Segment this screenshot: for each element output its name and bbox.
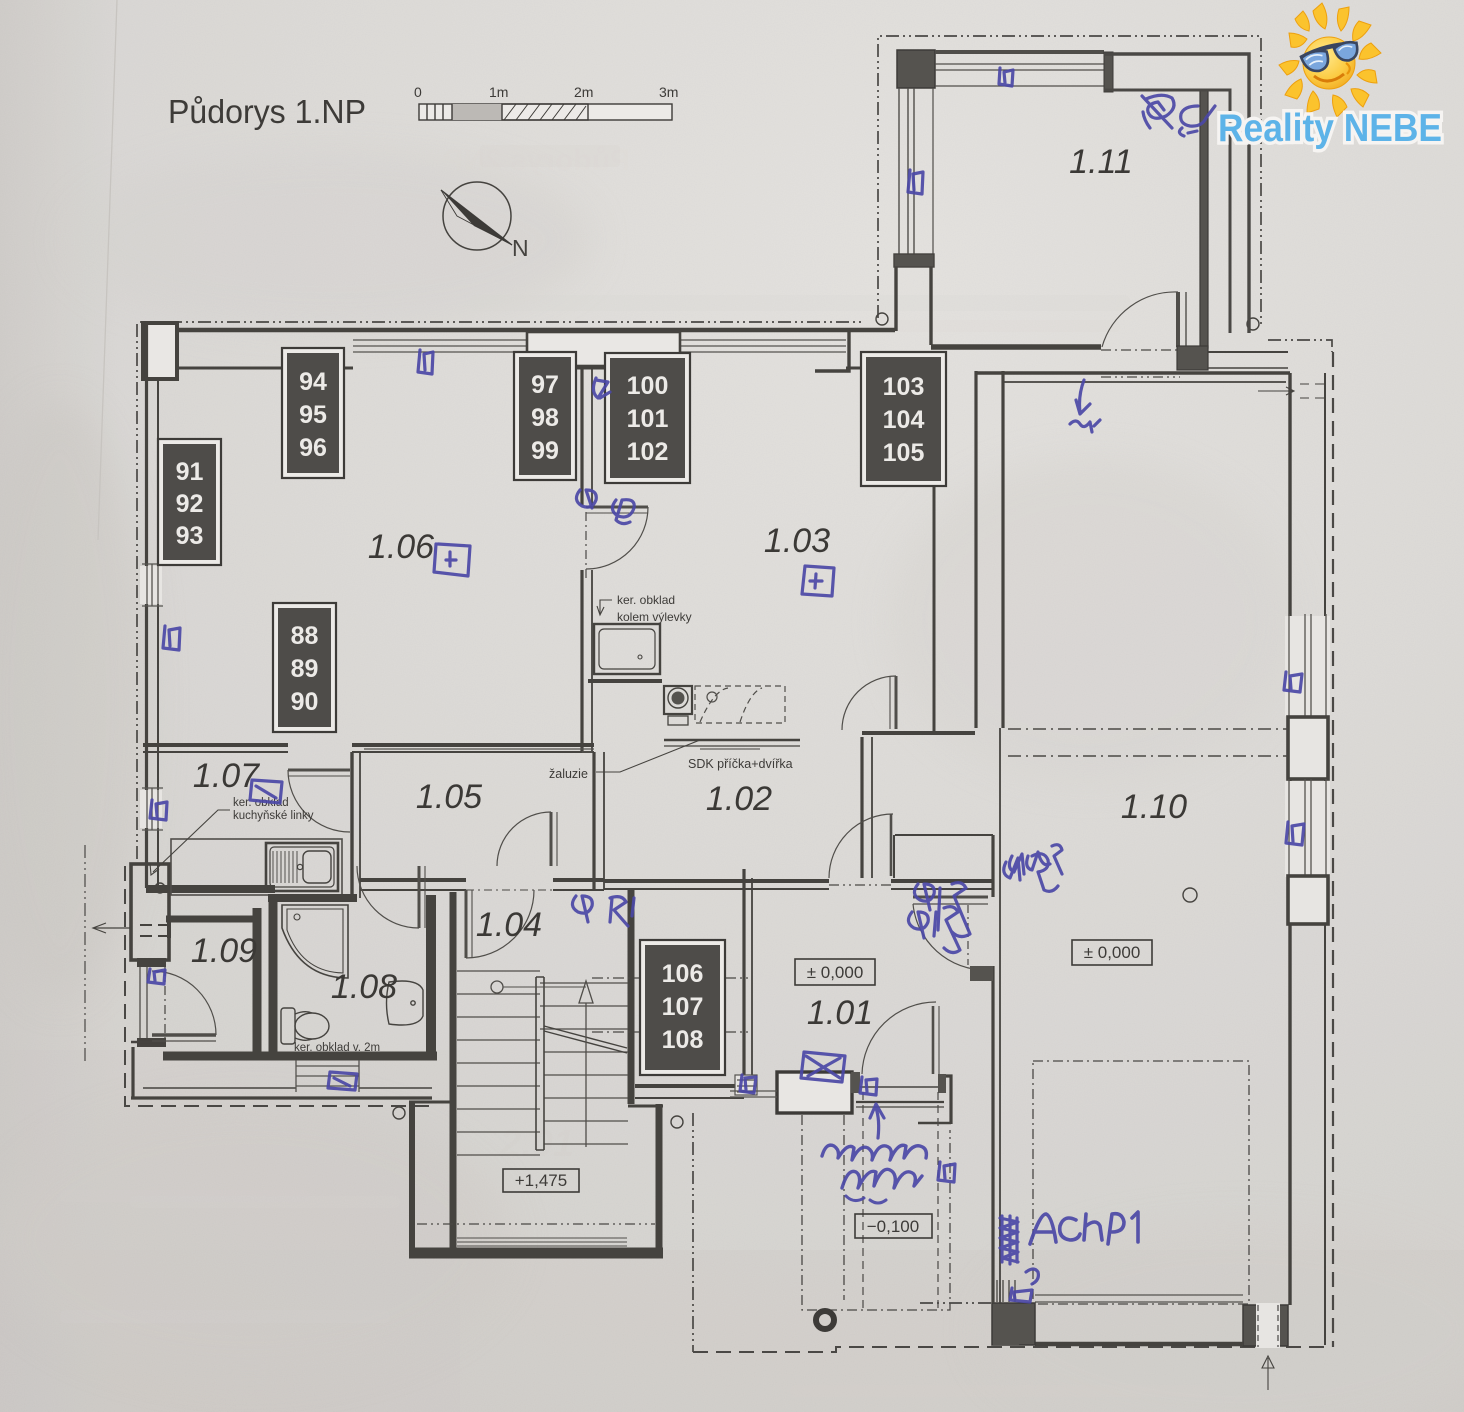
svg-text:1.08: 1.08 — [331, 968, 397, 1006]
svg-text:91: 91 — [176, 458, 204, 486]
svg-text:žaluzie: žaluzie — [549, 767, 588, 781]
svg-text:Půdorys 1.NP: Půdorys 1.NP — [168, 93, 366, 130]
svg-text:94: 94 — [299, 368, 327, 396]
svg-text:88: 88 — [291, 622, 319, 650]
svg-text:101: 101 — [627, 405, 669, 433]
svg-text:1.03: 1.03 — [764, 522, 830, 560]
svg-text:Reality NEBE: Reality NEBE — [1218, 107, 1442, 150]
svg-text:2m: 2m — [574, 84, 593, 100]
svg-text:± 0,000: ± 0,000 — [807, 963, 864, 982]
svg-text:kolem výlevky: kolem výlevky — [617, 610, 692, 624]
svg-text:93: 93 — [176, 522, 204, 550]
svg-text:1m: 1m — [489, 84, 508, 100]
svg-text:105: 105 — [883, 439, 925, 467]
svg-text:1.04: 1.04 — [476, 906, 542, 944]
svg-text:ker. obklad v. 2m: ker. obklad v. 2m — [294, 1042, 380, 1054]
svg-text:1.06: 1.06 — [368, 528, 434, 566]
svg-text:107: 107 — [662, 993, 704, 1021]
svg-text:99: 99 — [531, 437, 559, 465]
svg-text:98: 98 — [531, 404, 559, 432]
svg-text:1.02: 1.02 — [706, 780, 772, 818]
svg-text:± 0,000: ± 0,000 — [1084, 943, 1141, 962]
svg-text:N: N — [512, 235, 529, 261]
svg-text:+1,475: +1,475 — [515, 1171, 567, 1190]
svg-text:90: 90 — [291, 688, 319, 716]
svg-text:0: 0 — [414, 84, 422, 100]
svg-text:ker. obklad: ker. obklad — [617, 593, 675, 607]
svg-text:89: 89 — [291, 655, 319, 683]
svg-text:100: 100 — [627, 372, 669, 400]
svg-text:3m: 3m — [659, 84, 678, 100]
svg-text:1.11: 1.11 — [1069, 143, 1133, 181]
svg-text:103: 103 — [883, 373, 925, 401]
svg-text:92: 92 — [176, 490, 204, 518]
svg-text:SDK příčka+dvířka: SDK příčka+dvířka — [688, 757, 793, 771]
svg-text:108: 108 — [662, 1026, 704, 1054]
svg-text:1.10: 1.10 — [1121, 788, 1187, 826]
svg-text:1.01: 1.01 — [807, 994, 873, 1032]
svg-text:96: 96 — [299, 434, 327, 462]
svg-text:kuchyňské linky: kuchyňské linky — [233, 810, 314, 822]
svg-text:104: 104 — [883, 406, 925, 434]
svg-text:95: 95 — [299, 401, 327, 429]
svg-text:102: 102 — [627, 438, 669, 466]
svg-text:1.05: 1.05 — [416, 778, 482, 816]
svg-text:1.09: 1.09 — [191, 932, 257, 970]
svg-text:106: 106 — [662, 960, 704, 988]
svg-text:97: 97 — [531, 371, 559, 399]
svg-text:−0,100: −0,100 — [867, 1217, 919, 1236]
